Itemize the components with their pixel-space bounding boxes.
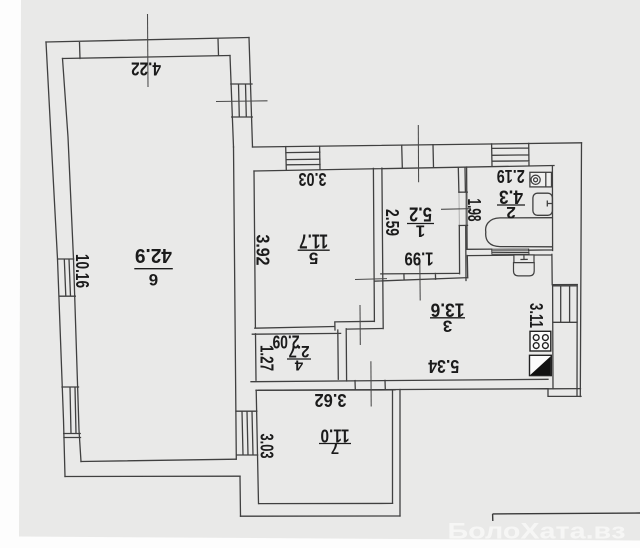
svg-text:42.9: 42.9 [135,244,172,266]
svg-text:11.7: 11.7 [299,229,328,251]
svg-text:5.34: 5.34 [428,356,459,376]
svg-text:1: 1 [416,222,425,241]
svg-text:7: 7 [331,440,339,457]
svg-text:2.19: 2.19 [497,166,525,186]
svg-text:3.03: 3.03 [257,434,277,459]
svg-text:6: 6 [149,270,158,289]
svg-text:2: 2 [506,203,515,222]
svg-text:3: 3 [443,317,452,336]
svg-text:3.62: 3.62 [315,390,347,410]
svg-text:10.16: 10.16 [72,254,92,288]
svg-text:4.22: 4.22 [131,59,161,79]
svg-text:1.27: 1.27 [257,345,277,371]
svg-text:5.2: 5.2 [409,203,432,225]
svg-text:1.98: 1.98 [464,199,484,222]
svg-text:3.03: 3.03 [299,169,327,189]
svg-text:2.59: 2.59 [382,209,402,236]
svg-text:5: 5 [309,248,318,267]
svg-text:3.11: 3.11 [526,303,546,328]
svg-text:1.99: 1.99 [405,249,434,269]
svg-text:13.6: 13.6 [431,299,465,320]
svg-text:3.92: 3.92 [253,235,273,266]
svg-text:БолоХата.вз: БолоХата.вз [448,519,626,544]
